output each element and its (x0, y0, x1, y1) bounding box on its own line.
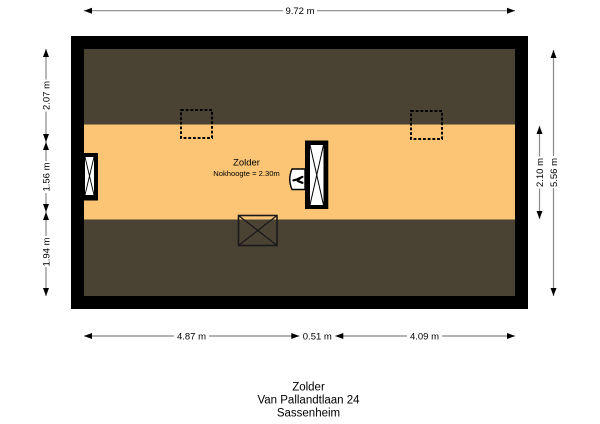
svg-text:Sassenheim: Sassenheim (277, 408, 340, 420)
svg-text:Zolder: Zolder (233, 158, 260, 169)
svg-text:2.07 m: 2.07 m (41, 81, 52, 110)
svg-text:5.56 m: 5.56 m (549, 158, 560, 187)
svg-text:4.87 m: 4.87 m (177, 332, 206, 343)
svg-text:4.09 m: 4.09 m (410, 332, 439, 343)
svg-text:Zolder: Zolder (292, 382, 325, 394)
svg-text:1.94 m: 1.94 m (41, 237, 52, 266)
svg-text:Van Pallandtlaan 24: Van Pallandtlaan 24 (257, 395, 360, 407)
svg-text:9.72 m: 9.72 m (285, 6, 314, 17)
svg-text:Nokhoogte = 2.30m: Nokhoogte = 2.30m (213, 169, 280, 178)
svg-text:0.51 m: 0.51 m (303, 332, 332, 343)
svg-text:2.10 m: 2.10 m (535, 158, 546, 187)
svg-text:1.56 m: 1.56 m (41, 162, 52, 191)
